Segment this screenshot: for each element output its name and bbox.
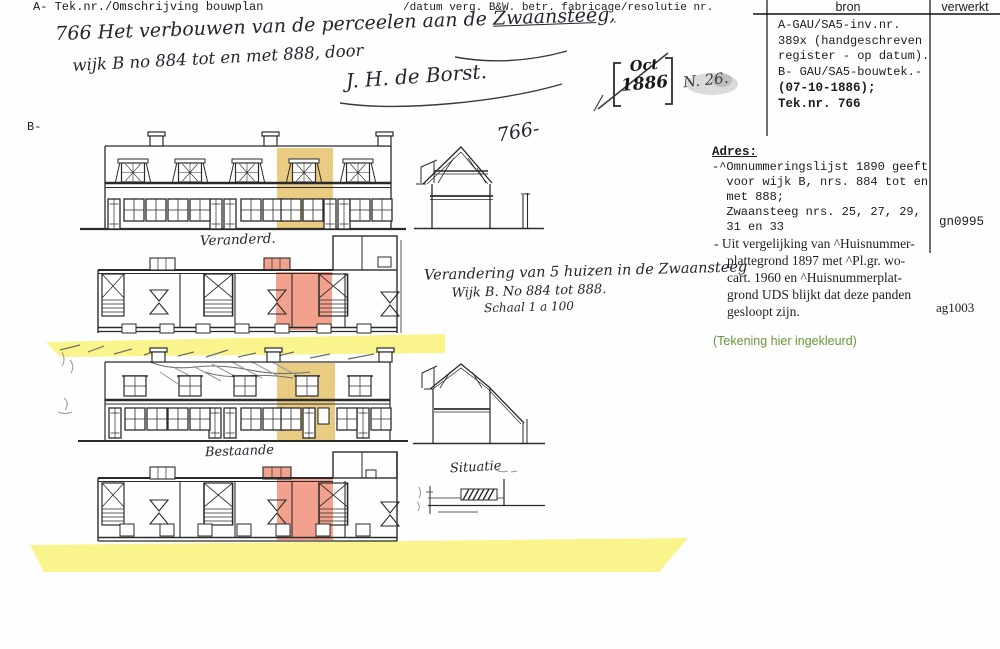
bron-line: Tek.nr. 766 [778,97,861,111]
bron-line: A-GAU/SA5-inv.nr. [778,19,900,33]
note-line: - Uit vergelijking van ^Huisnummer- [714,236,915,252]
lower-floorplan-drawing [98,452,399,541]
note-line: gesloopt zijn. [714,304,800,320]
adres-line: 31 en 33 [712,221,784,235]
adres-line: met 888; [712,191,784,205]
top-floorplan-drawing [98,236,401,333]
bron-line: (07-10-1886); [778,81,876,95]
green-note: (Tekening hier ingekleurd) [713,334,857,348]
site-plan-drawing [426,479,545,514]
adres-title: Adres: [712,145,757,159]
adres-line: Zwaansteeg nrs. 25, 27, 29, [712,206,921,220]
column-header-bron: bron [808,0,888,14]
top-elevation-drawing [80,132,406,229]
salmon-highlight-top-plan [276,272,332,330]
adres-line: voor wijk B, nrs. 884 tot en [712,176,928,190]
label-situatie: Situatie [450,460,502,478]
bron-line: B- GAU/SA5-bouwtek.- [778,66,922,80]
yellow-strip-lower [30,538,688,572]
lower-roof-section-drawing [413,364,545,444]
code-gn: gn0995 [939,215,984,229]
bron-line: register - op datum). [778,50,929,64]
label-veranderd: Veranderd. [200,232,276,250]
label-bestaande: Bestaande [205,444,275,461]
bron-line: 389x (handgeschreven [778,35,922,49]
adres-line: -^Omnummeringslijst 1890 geeft [712,161,928,175]
lower-elevation-drawing [78,348,408,441]
top-roof-section-drawing [414,147,544,229]
scanned-archive-document: A- Tek.nr./Omschrijving bouwplan /datum … [0,0,1000,649]
street-name: Zwaansteeg, [493,3,616,29]
header-left-label: A- Tek.nr./Omschrijving bouwplan [33,1,263,15]
column-header-verwerkt: verwerkt [931,0,999,14]
stamp-year: 1886 [620,73,668,96]
note-line: grond UDS blijkt dat deze panden [714,287,911,303]
code-ag: ag1003 [936,301,974,316]
corner-b-label: B- [27,121,41,135]
